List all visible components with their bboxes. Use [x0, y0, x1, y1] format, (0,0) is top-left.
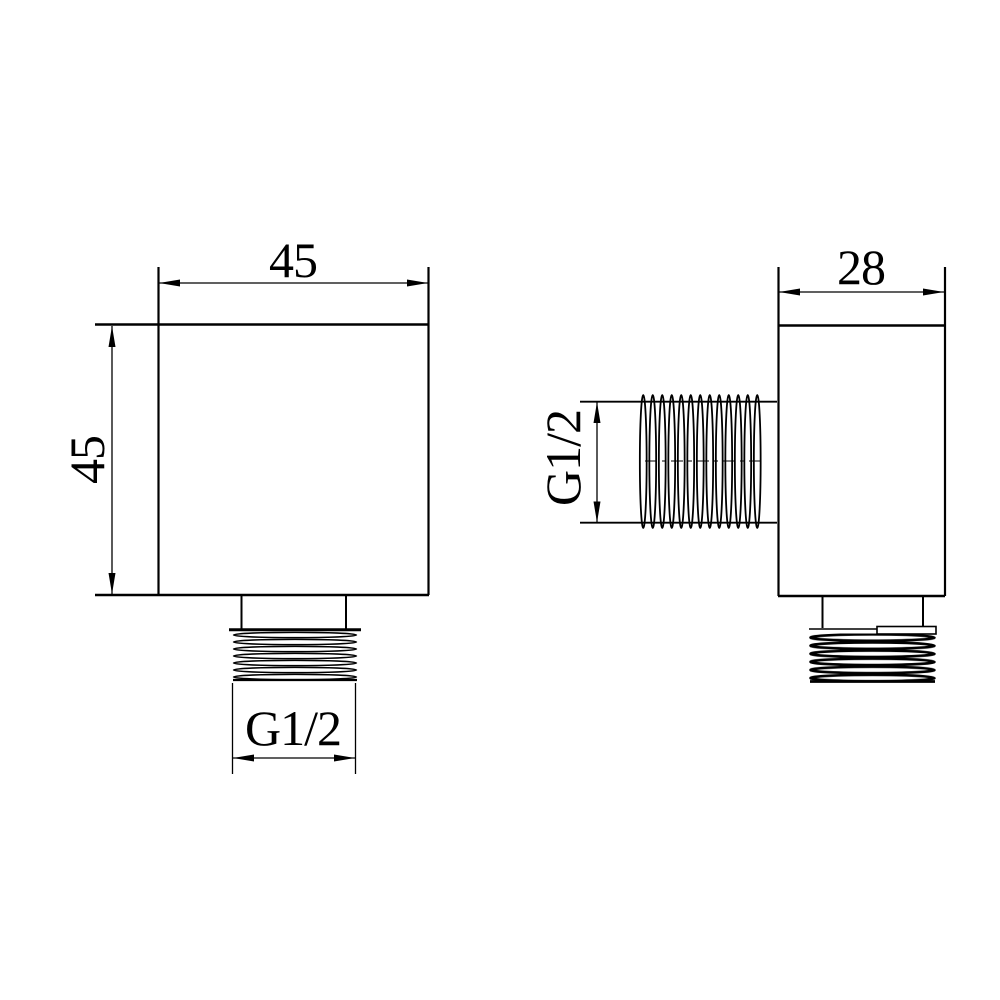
side-view — [580, 267, 945, 682]
front-dimensions: 45 45 G1/2 — [59, 232, 428, 762]
front-width-arrow-right — [407, 280, 428, 287]
side-depth-arrow-left — [779, 289, 800, 296]
side-inlet-thread-label: G1/2 — [535, 410, 591, 506]
drawing-canvas: 45 45 G1/2 — [0, 0, 1000, 1000]
side-depth-arrow-right — [923, 289, 944, 296]
side-inlet-arrow-bottom — [594, 502, 601, 523]
technical-drawing-svg: 45 45 G1/2 — [0, 0, 1000, 1000]
front-width-label: 45 — [269, 232, 317, 288]
side-outlet-thread-section — [809, 634, 936, 683]
front-thread-section — [232, 632, 358, 681]
side-thread-flange-face — [877, 627, 936, 635]
side-inlet-arrow-top — [594, 402, 601, 423]
side-depth-label: 28 — [837, 239, 885, 295]
front-height-label: 45 — [59, 436, 115, 484]
front-thread-label: G1/2 — [245, 700, 341, 756]
front-height-arrow-bottom — [109, 573, 116, 594]
front-height-arrow-top — [109, 326, 116, 347]
front-width-arrow-left — [159, 280, 180, 287]
front-view — [95, 267, 429, 774]
